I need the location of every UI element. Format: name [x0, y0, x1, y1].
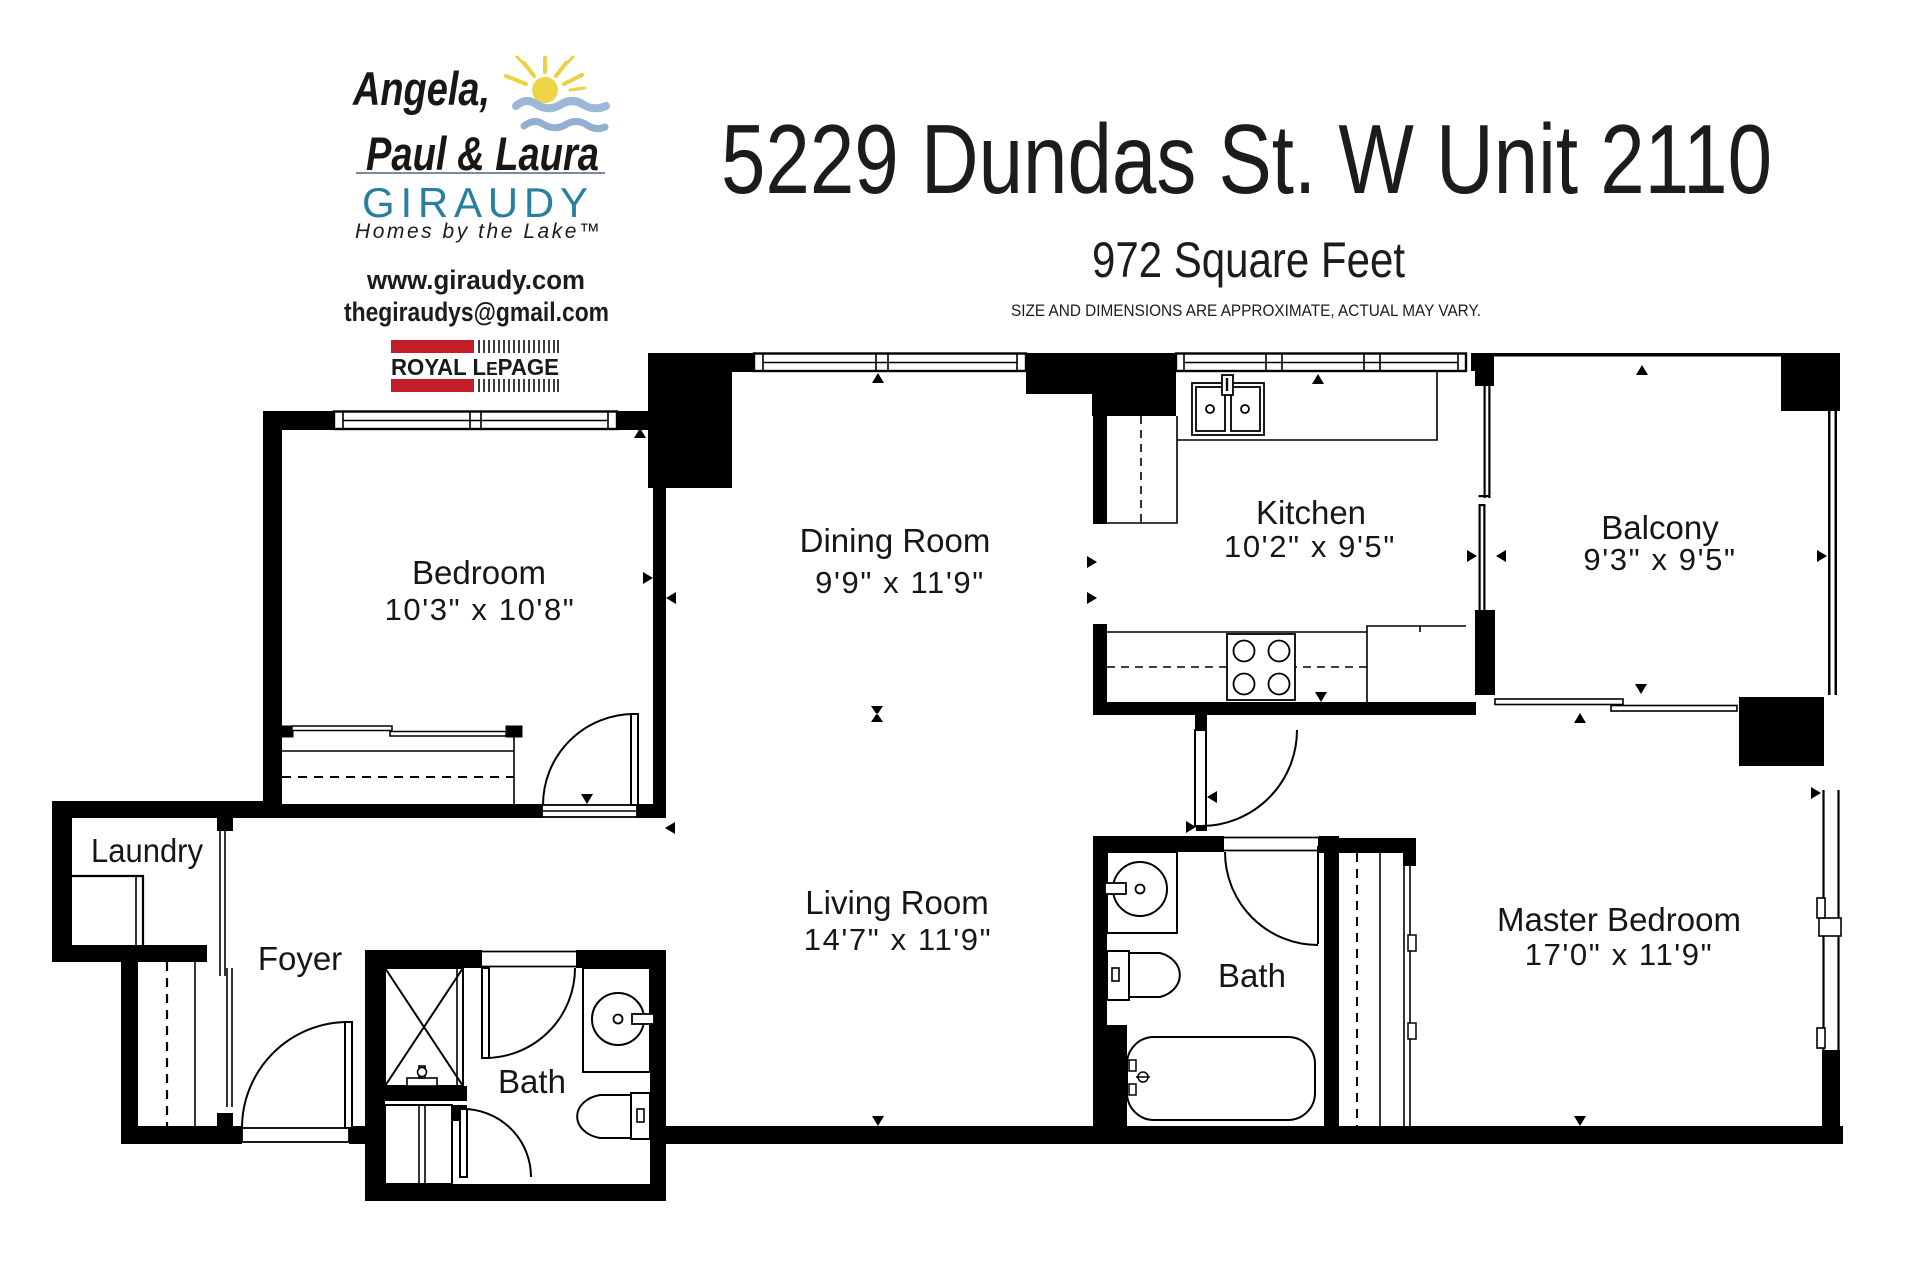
svg-text:Foyer: Foyer	[258, 940, 342, 977]
svg-text:Angela,: Angela,	[352, 62, 490, 115]
svg-text:Master Bedroom: Master Bedroom	[1497, 901, 1741, 938]
svg-text:Living Room: Living Room	[805, 884, 988, 921]
svg-text:Laundry: Laundry	[91, 832, 203, 869]
svg-text:GIRAUDY: GIRAUDY	[362, 179, 597, 226]
svg-text:9'9" x 11'9": 9'9" x 11'9"	[815, 565, 985, 600]
svg-text:10'2" x 9'5": 10'2" x 9'5"	[1224, 529, 1396, 564]
svg-text:Kitchen: Kitchen	[1256, 494, 1366, 531]
svg-text:17'0" x 11'9": 17'0" x 11'9"	[1525, 937, 1714, 972]
svg-text:SIZE AND DIMENSIONS ARE APPROX: SIZE AND DIMENSIONS ARE APPROXIMATE, ACT…	[1011, 301, 1481, 320]
svg-text:Bath: Bath	[498, 1063, 566, 1100]
svg-text:972 Square Feet: 972 Square Feet	[1092, 232, 1405, 288]
svg-text:www.giraudy.com: www.giraudy.com	[366, 265, 585, 295]
svg-text:Bedroom: Bedroom	[412, 554, 546, 591]
svg-text:5229 Dundas St. W Unit 2110: 5229 Dundas St. W Unit 2110	[721, 104, 1772, 214]
svg-text:9'3" x 9'5": 9'3" x 9'5"	[1583, 542, 1736, 577]
svg-text:thegiraudys@gmail.com: thegiraudys@gmail.com	[344, 297, 609, 327]
svg-text:Bath: Bath	[1218, 957, 1286, 994]
svg-text:Dining Room: Dining Room	[800, 522, 991, 559]
svg-text:14'7" x 11'9": 14'7" x 11'9"	[804, 922, 993, 957]
svg-text:10'3" x 10'8": 10'3" x 10'8"	[385, 592, 576, 627]
svg-text:Balcony: Balcony	[1601, 509, 1719, 546]
svg-text:ROYAL LEPAGE: ROYAL LEPAGE	[391, 354, 559, 380]
